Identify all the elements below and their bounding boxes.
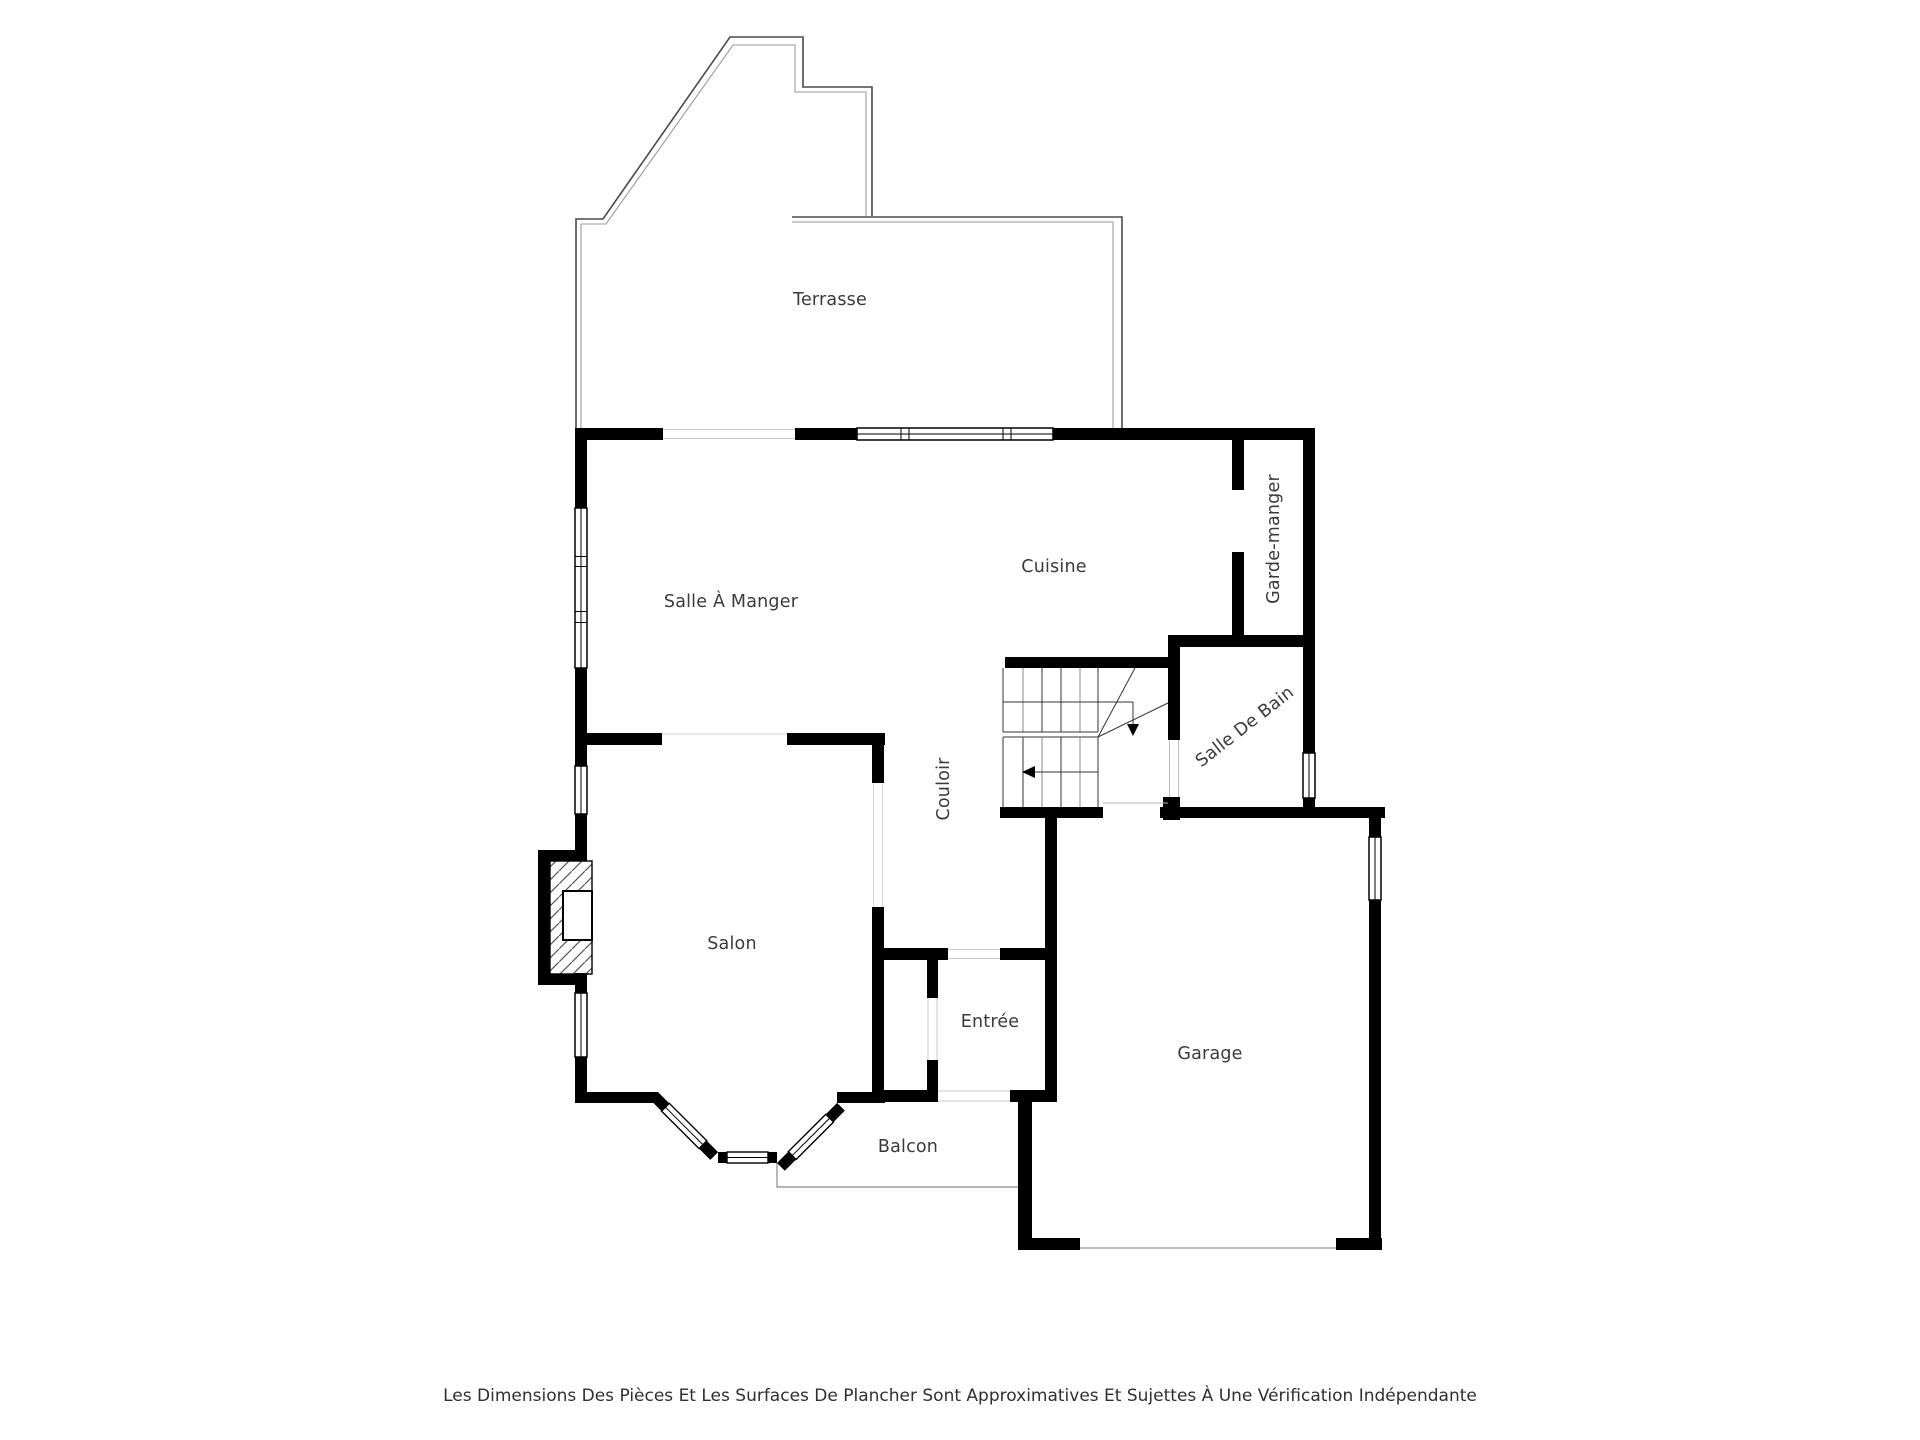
staircase [1003, 668, 1168, 807]
kitchen-window [857, 428, 1053, 440]
room-label-cuisine: Cuisine [1021, 557, 1086, 577]
windows-layer [575, 428, 1381, 1057]
bay-window [650, 1092, 845, 1171]
floor-plan-drawing [0, 0, 1920, 1440]
disclaimer-text: Les Dimensions Des Pièces Et Les Surface… [443, 1386, 1477, 1406]
garage-window [1369, 837, 1381, 900]
fireplace [538, 850, 592, 985]
room-label-salon: Salon [707, 934, 757, 954]
stair-arrow-left-icon [1022, 766, 1035, 778]
dining-window [575, 508, 587, 668]
room-label-garage: Garage [1177, 1044, 1242, 1064]
room-label-salle-a-manger: Salle À Manger [664, 592, 798, 612]
salon-lower-window [575, 993, 587, 1057]
balcony-outline [777, 1163, 1018, 1187]
terrace-outline [576, 37, 1122, 428]
bathroom-window [1303, 753, 1315, 798]
salon-upper-window [575, 766, 587, 814]
room-label-terrasse: Terrasse [793, 290, 867, 310]
room-label-balcon: Balcon [878, 1137, 938, 1157]
room-label-entree: Entrée [961, 1012, 1020, 1032]
room-label-garde-manger: Garde-manger [1264, 474, 1284, 604]
floor-plan: Terrasse Salle À Manger Cuisine Garde-ma… [0, 0, 1920, 1440]
stair-arrow-down-icon [1127, 724, 1139, 736]
room-label-couloir: Couloir [934, 757, 954, 820]
